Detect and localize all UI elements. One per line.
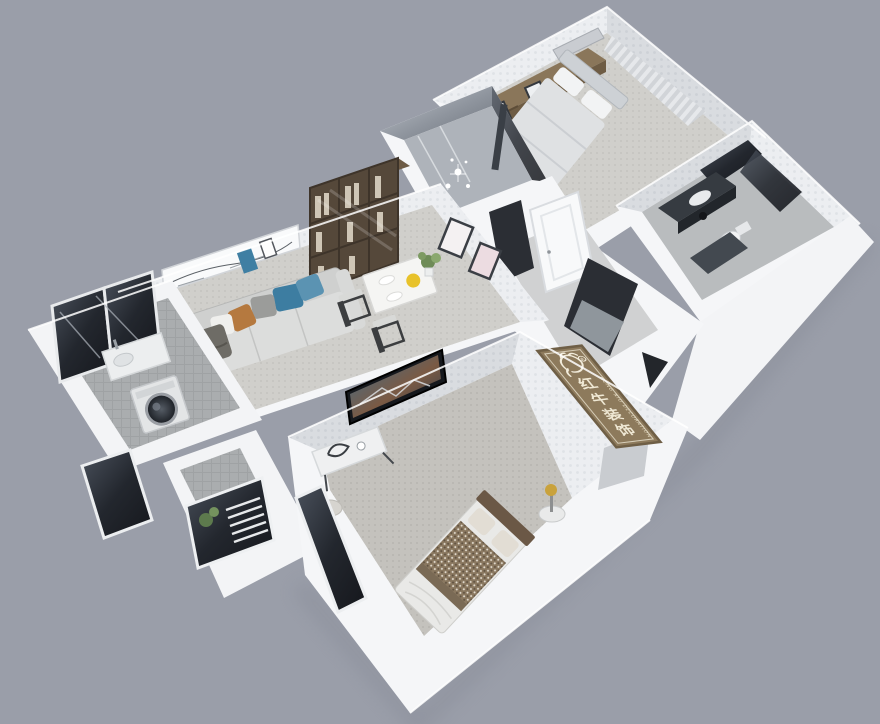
screenshot-3d-floorplan: R 红 牛 装 饰 HONG NIU DECORATION (0, 0, 880, 724)
floorplan-3d-render: R 红 牛 装 饰 HONG NIU DECORATION (0, 0, 880, 724)
trash-bin (699, 212, 707, 220)
